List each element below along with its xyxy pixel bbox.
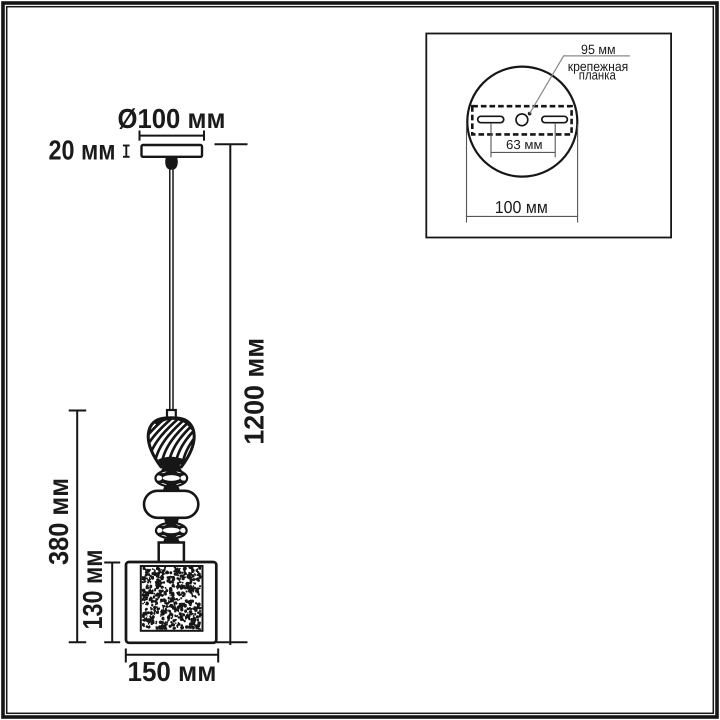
- svg-text:63 мм: 63 мм: [506, 137, 543, 152]
- svg-text:20 мм: 20 мм: [49, 135, 116, 166]
- svg-text:100 мм: 100 мм: [495, 197, 548, 217]
- svg-text:1200 мм: 1200 мм: [239, 338, 270, 445]
- svg-text:Ø100 мм: Ø100 мм: [118, 103, 226, 134]
- svg-text:380 мм: 380 мм: [43, 478, 74, 565]
- svg-text:130 мм: 130 мм: [77, 550, 108, 630]
- svg-text:150 мм: 150 мм: [128, 656, 217, 687]
- svg-text:планка: планка: [579, 68, 616, 83]
- svg-text:95 мм: 95 мм: [581, 42, 616, 57]
